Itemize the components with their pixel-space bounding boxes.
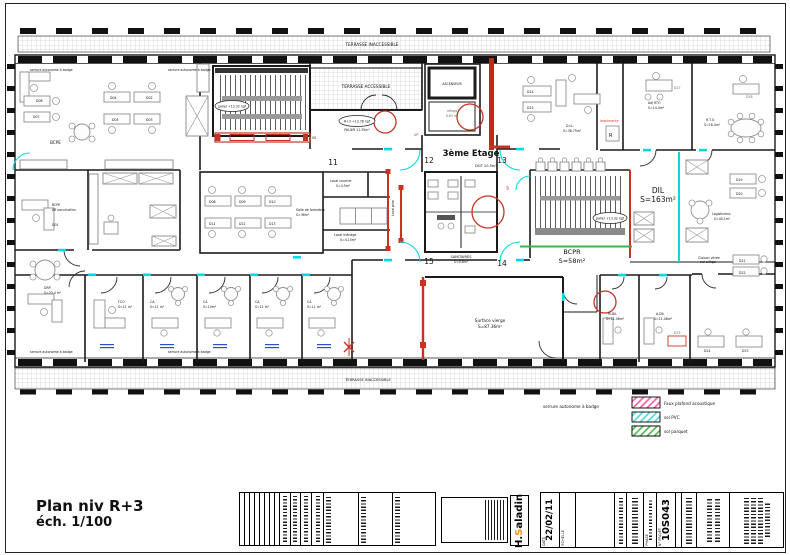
svg-text:DIL: DIL bbox=[652, 186, 665, 195]
svg-text:D25: D25 bbox=[674, 331, 681, 335]
svg-text:CA: CA bbox=[150, 300, 155, 304]
svg-text:SANITAIRES: SANITAIRES bbox=[450, 255, 472, 259]
logo-box: H.Saladin bbox=[510, 495, 529, 546]
svg-text:R+3 +13.78 ngf: R+3 +13.78 ngf bbox=[344, 120, 371, 124]
svg-text:S=36m²: S=36m² bbox=[296, 213, 310, 217]
svg-text:D02: D02 bbox=[146, 96, 153, 100]
logo: H.Saladin bbox=[514, 494, 525, 548]
terrace-bottom-label: TERRASSE INACCESSIBLE bbox=[344, 378, 391, 382]
ca-rooms: CAS=11 m² CAS=10m² CAS=11 m² CAS=11 m² bbox=[100, 286, 344, 348]
svg-text:BCPR: BCPR bbox=[563, 248, 581, 256]
floor-plan: TERRASSE INACCESSIBLE TERRASSE INACCESSI… bbox=[0, 0, 790, 480]
scale-cell: ECHELLE bbox=[560, 493, 576, 547]
svg-text:sur allège: sur allège bbox=[700, 260, 716, 264]
svg-text:R: R bbox=[609, 133, 613, 139]
svg-text:S=11 m²: S=11 m² bbox=[118, 305, 133, 309]
scale-label: ECHELLE bbox=[561, 530, 565, 546]
svg-text:D19: D19 bbox=[736, 178, 743, 182]
architect-address-box bbox=[441, 497, 508, 543]
level-labels: R+3 +13.78 ngf PALIER 11.35m² bbox=[339, 116, 375, 133]
terrace-bottom: TERRASSE INACCESSIBLE bbox=[15, 368, 775, 392]
phase-cell: PHASE bbox=[644, 493, 657, 547]
dil-room: D14 D15 D.I.L. S=38.75m² Imprimante R bbox=[523, 75, 619, 142]
svg-text:Surface vierge: Surface vierge bbox=[475, 318, 506, 323]
svg-text:D17: D17 bbox=[674, 86, 681, 90]
legend-swatch-acoustic-ceiling bbox=[632, 397, 660, 408]
svg-text:D11: D11 bbox=[209, 222, 216, 226]
svg-text:Local plan: Local plan bbox=[391, 200, 395, 216]
svg-text:CA: CA bbox=[203, 300, 208, 304]
svg-text:CA: CA bbox=[255, 300, 260, 304]
svg-text:D04: D04 bbox=[110, 96, 117, 100]
up-arrow-1: UP bbox=[414, 133, 418, 137]
bcpe-room: BCPE Aff ponctuelles D01 bbox=[22, 174, 98, 244]
drawing-sheet: { "colors": {"wall":"#1b1b1b","cyan":"#0… bbox=[0, 0, 790, 555]
svg-text:D24: D24 bbox=[704, 349, 711, 353]
project-number: 10S043 bbox=[661, 499, 672, 541]
svg-text:Local courrier: Local courrier bbox=[330, 179, 352, 183]
legend-label-pvc-floor: sol PVC bbox=[664, 415, 680, 420]
legend-swatch-pvc-floor bbox=[632, 412, 660, 422]
svg-text:S=14.4m²: S=14.4m² bbox=[648, 106, 665, 110]
svg-text:D23: D23 bbox=[742, 349, 749, 353]
terrace-top: TERRASSE INACCESSIBLE bbox=[18, 31, 770, 52]
svg-text:S=40.1m²: S=40.1m² bbox=[714, 217, 731, 221]
staircase-right: palier +13.32 ngf bbox=[520, 158, 632, 247]
svg-text:S=4.15m²: S=4.15m² bbox=[340, 238, 357, 242]
training-room: D08 D09 D10 D11 D12 D13 Salle de formati… bbox=[205, 187, 325, 238]
svg-text:D21: D21 bbox=[739, 259, 746, 263]
refuge-label-1: refuge bbox=[447, 109, 457, 113]
svg-text:S=87.36m²: S=87.36m² bbox=[478, 324, 502, 329]
project-cell: N° PROJET 10S043 bbox=[657, 493, 676, 547]
svg-text:S=4.5m²: S=4.5m² bbox=[336, 184, 351, 188]
surface-vierge: Surface vierge S=87.36m² bbox=[475, 318, 506, 329]
svg-text:D18: D18 bbox=[746, 95, 753, 99]
svg-text:BCPE: BCPE bbox=[52, 203, 60, 207]
legend-label-parquet-floor: sol parquet bbox=[664, 429, 688, 434]
bcpr-label: BCPR S=58m² bbox=[559, 248, 586, 265]
drp-room: DRP S=23.4 m² bbox=[28, 260, 62, 322]
svg-text:S=11.08m²: S=11.08m² bbox=[606, 317, 625, 321]
svg-text:14: 14 bbox=[497, 259, 507, 268]
room-bcpe-open: BCPE bbox=[50, 140, 61, 145]
svg-text:S=18.4m²: S=18.4m² bbox=[704, 123, 721, 127]
svg-text:S=58m²: S=58m² bbox=[559, 257, 586, 265]
svg-text:D05: D05 bbox=[112, 118, 119, 122]
svg-text:D13: D13 bbox=[269, 222, 276, 226]
cartouche: DATE 22/02/11 ECHELLE PHASE N° PROJET 10… bbox=[540, 492, 784, 548]
svg-text:S=163m²: S=163m² bbox=[640, 195, 676, 204]
room-dgt: DGT 10.5m² bbox=[475, 164, 497, 168]
legend-label-acoustic-ceiling: Faux plafond acoustique bbox=[664, 401, 716, 406]
up-arrow-2: UP bbox=[506, 186, 510, 190]
legend: serrure autonome à badge Faux plafond ac… bbox=[543, 397, 716, 436]
fco-room: FCO S=11 m² bbox=[94, 300, 133, 328]
mdil-rooms: M.DIL S=11.08m² A.DIL S=11.08m² D25 bbox=[603, 312, 686, 346]
revision-table bbox=[239, 492, 436, 546]
svg-text:D09: D09 bbox=[239, 200, 246, 204]
rto-room: D18 R.T.O. S=18.4m² bbox=[704, 76, 764, 143]
svg-text:S=23.4 m²: S=23.4 m² bbox=[44, 291, 62, 295]
svg-text:D03: D03 bbox=[146, 118, 153, 122]
adj-rto-room: Adj RTO S=14.4m² D17 bbox=[645, 73, 681, 111]
svg-text:serrure autonome à badge: serrure autonome à badge bbox=[168, 68, 211, 72]
svg-text:serrure autonome à badge: serrure autonome à badge bbox=[168, 350, 211, 354]
service-rooms: Local courrier S=4.5m² Local ménage S=4.… bbox=[330, 179, 395, 242]
svg-text:M.DIL: M.DIL bbox=[608, 312, 617, 316]
svg-text:D14: D14 bbox=[527, 90, 534, 94]
svg-text:15: 15 bbox=[424, 257, 434, 266]
sheet-title: Plan niv R+3 éch. 1/100 bbox=[36, 498, 144, 530]
floor-title: 3ème Etage bbox=[443, 148, 500, 159]
svg-text:Salle de formation: Salle de formation bbox=[296, 208, 325, 212]
svg-text:S=11 m²: S=11 m² bbox=[255, 305, 270, 309]
svg-text:11: 11 bbox=[328, 158, 338, 167]
svg-text:D06: D06 bbox=[36, 99, 43, 103]
svg-text:D08: D08 bbox=[209, 200, 216, 204]
svg-text:Logisticiens: Logisticiens bbox=[712, 212, 731, 216]
svg-text:R.T.O.: R.T.O. bbox=[706, 118, 715, 122]
open-office-furniture bbox=[20, 64, 209, 142]
svg-text:Adj RTO: Adj RTO bbox=[648, 101, 661, 105]
svg-text:PALIER 11.35m²: PALIER 11.35m² bbox=[344, 128, 370, 132]
svg-text:S=11.08m²: S=11.08m² bbox=[654, 317, 673, 321]
svg-text:S=38.75m²: S=38.75m² bbox=[563, 129, 582, 133]
svg-text:D07: D07 bbox=[33, 115, 40, 119]
svg-text:S=11 m²: S=11 m² bbox=[150, 305, 165, 309]
elevator-label: ASCENSEUR bbox=[442, 82, 462, 86]
svg-text:Local ménage: Local ménage bbox=[334, 233, 356, 237]
svg-text:D01: D01 bbox=[52, 223, 59, 227]
terrace-top-label: TERRASSE INACCESSIBLE bbox=[344, 42, 398, 47]
svg-text:Imprimante: Imprimante bbox=[600, 119, 619, 123]
svg-text:CA: CA bbox=[307, 300, 312, 304]
svg-text:S=11 m²: S=11 m² bbox=[307, 305, 322, 309]
vs-label: VS bbox=[312, 136, 316, 140]
svg-text:D22: D22 bbox=[739, 271, 746, 275]
svg-text:serrure autonome à badge: serrure autonome à badge bbox=[30, 350, 73, 354]
date-value: 22/02/11 bbox=[545, 499, 555, 541]
terrace-accessible-label: TERRASSE ACCESSIBLE bbox=[341, 84, 391, 89]
svg-text:S=10m²: S=10m² bbox=[203, 305, 217, 309]
sheet-title-name: Plan niv R+3 bbox=[36, 498, 144, 515]
phase-label: PHASE bbox=[645, 534, 649, 546]
staircase-left: palier +13.32 ngf VS bbox=[213, 66, 316, 142]
svg-text:D20: D20 bbox=[736, 192, 743, 196]
svg-text:D15: D15 bbox=[527, 106, 534, 110]
svg-text:12: 12 bbox=[424, 156, 434, 165]
sheet-title-scale: éch. 1/100 bbox=[36, 515, 144, 530]
palier-level-1: palier +13.32 ngf bbox=[218, 105, 247, 109]
svg-text:S=9.8m²: S=9.8m² bbox=[454, 260, 469, 264]
svg-text:FCO: FCO bbox=[118, 300, 125, 304]
architect-address-text bbox=[485, 500, 506, 540]
svg-text:D10: D10 bbox=[269, 200, 276, 204]
svg-text:Aff ponctuelles: Aff ponctuelles bbox=[52, 208, 76, 212]
svg-text:DRP: DRP bbox=[44, 286, 51, 290]
date-cell: DATE 22/02/11 bbox=[541, 493, 560, 547]
bench-row bbox=[536, 158, 605, 171]
open-office-bottom-right: D21 D22 D24 D23 bbox=[698, 255, 767, 353]
legend-note: serrure autonome à badge bbox=[543, 404, 599, 409]
svg-text:A.DIL: A.DIL bbox=[656, 312, 665, 316]
svg-text:13: 13 bbox=[497, 156, 507, 165]
svg-text:D12: D12 bbox=[239, 222, 246, 226]
svg-text:D.I.L.: D.I.L. bbox=[566, 124, 574, 128]
dil-open-area: DIL S=163m² D19 D20 Logisticiens S=40.1m… bbox=[634, 160, 766, 264]
palier-level-2: palier +13.32 ngf bbox=[596, 217, 625, 221]
elevator: ASCENSEUR refuge 0.63 m² bbox=[425, 64, 480, 135]
svg-text:serrure autonome à badge: serrure autonome à badge bbox=[30, 68, 73, 72]
